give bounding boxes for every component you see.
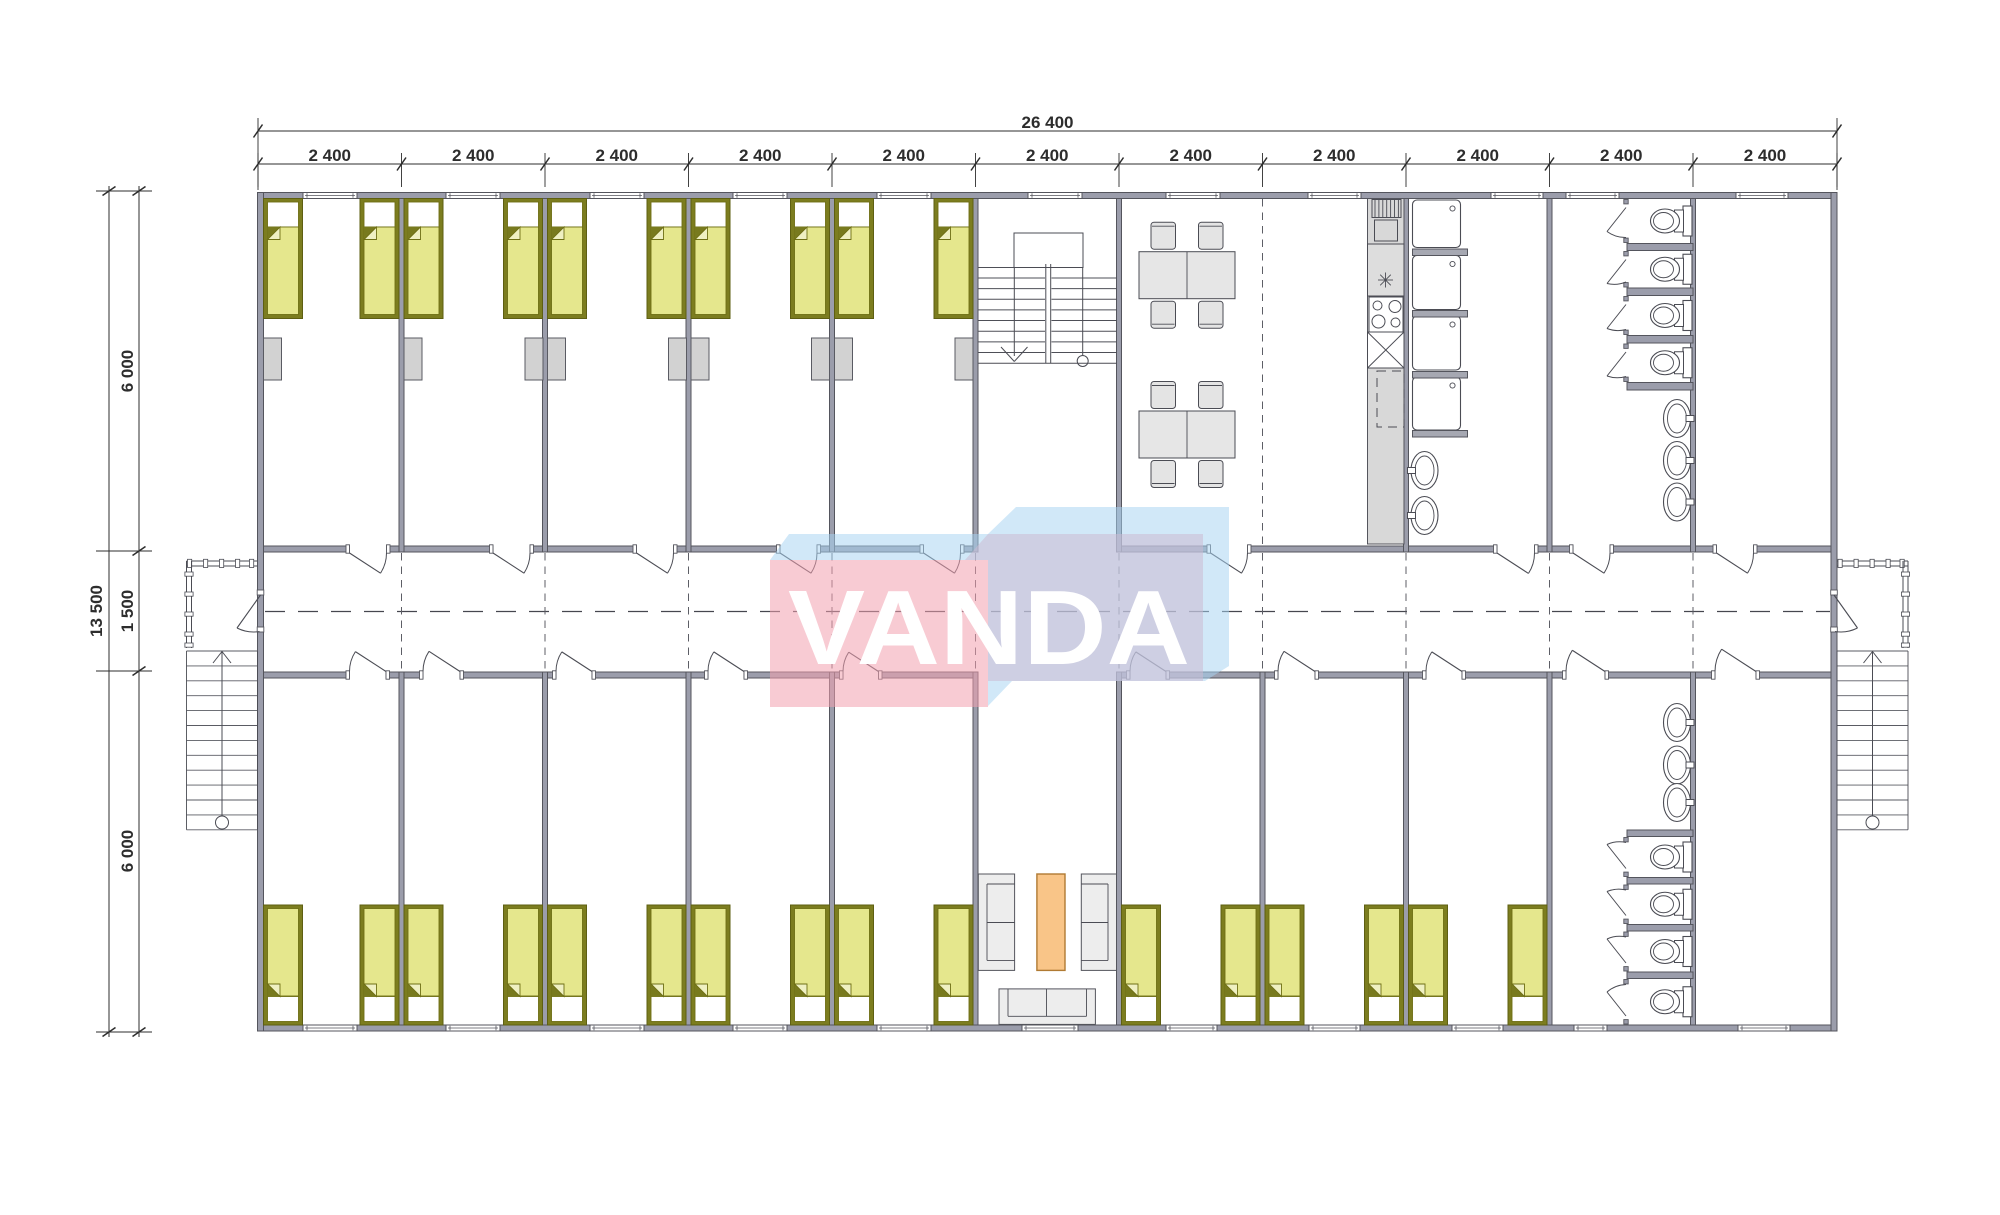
svg-text:2 400: 2 400 — [1744, 146, 1787, 165]
svg-text:2 400: 2 400 — [308, 146, 351, 165]
svg-text:2 400: 2 400 — [1600, 146, 1643, 165]
svg-text:2 400: 2 400 — [882, 146, 925, 165]
svg-text:2 400: 2 400 — [739, 146, 782, 165]
svg-text:2 400: 2 400 — [595, 146, 638, 165]
svg-text:2 400: 2 400 — [1456, 146, 1499, 165]
svg-text:2 400: 2 400 — [452, 146, 495, 165]
svg-text:26 400: 26 400 — [1022, 113, 1074, 132]
svg-text:VANDA: VANDA — [788, 569, 1190, 687]
svg-text:6 000: 6 000 — [118, 350, 137, 393]
svg-text:2 400: 2 400 — [1026, 146, 1069, 165]
svg-text:13 500: 13 500 — [87, 585, 106, 637]
svg-text:1 500: 1 500 — [118, 590, 137, 633]
svg-text:6 000: 6 000 — [118, 830, 137, 873]
svg-text:2 400: 2 400 — [1313, 146, 1356, 165]
svg-text:2 400: 2 400 — [1169, 146, 1212, 165]
